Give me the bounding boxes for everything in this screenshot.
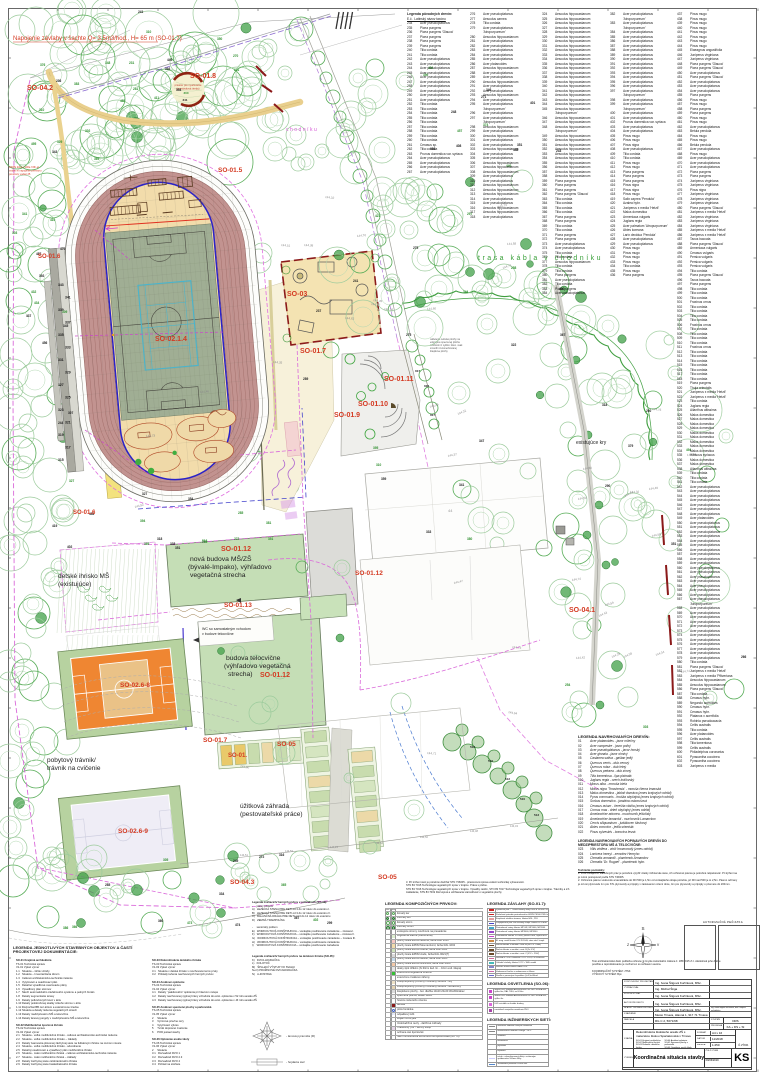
svg-text:(pestovateľské práce): (pestovateľské práce) (240, 811, 303, 818)
svg-text:512: 512 (505, 777, 510, 781)
svg-text:392: 392 (39, 274, 45, 278)
svg-text:144,60: 144,60 (427, 306, 437, 311)
svg-text:144,64: 144,64 (508, 710, 518, 716)
svg-text:381: 381 (266, 521, 272, 525)
svg-text:290: 290 (605, 484, 611, 488)
svg-text:350: 350 (217, 37, 223, 41)
svg-text:SO-01.6: SO-01.6 (73, 510, 96, 516)
svg-text:231: 231 (234, 68, 240, 72)
svg-text:SO-01.9: SO-01.9 (334, 412, 360, 419)
svg-text:144,74: 144,74 (624, 490, 634, 498)
svg-text:470: 470 (60, 247, 66, 251)
svg-text:513: 513 (534, 813, 539, 817)
svg-text:315: 315 (58, 458, 64, 462)
svg-text:338: 338 (170, 542, 176, 546)
svg-text:510: 510 (520, 797, 525, 801)
svg-text:249: 249 (233, 859, 239, 863)
svg-text:- hojdacia sieť: - hojdacia sieť (286, 1060, 306, 1064)
svg-text:WC so samostatným vchodom: WC so samostatným vchodom (202, 627, 251, 631)
svg-text:383: 383 (74, 82, 80, 86)
svg-text:144,32: 144,32 (325, 195, 335, 200)
svg-text:017: 017 (415, 369, 420, 373)
svg-text:SO-01.5: SO-01.5 (218, 167, 243, 174)
svg-text:379: 379 (628, 444, 634, 448)
svg-text:pobytový trávnik/: pobytový trávnik/ (47, 757, 96, 764)
svg-text:329: 329 (65, 371, 71, 375)
svg-text:nová budova MŠ/ZŠ: nová budova MŠ/ZŠ (190, 554, 252, 563)
svg-text:325: 325 (65, 396, 71, 400)
svg-text:354: 354 (188, 497, 194, 501)
svg-text:331: 331 (58, 358, 64, 362)
svg-text:343: 343 (52, 150, 58, 154)
svg-text:323: 323 (58, 408, 64, 412)
svg-text:281: 281 (133, 87, 139, 91)
svg-text:474: 474 (235, 923, 241, 927)
svg-text:341: 341 (22, 212, 28, 216)
svg-text:365: 365 (281, 883, 287, 887)
svg-text:144,46: 144,46 (200, 389, 210, 394)
svg-text:144,86: 144,86 (384, 307, 394, 312)
svg-text:347: 347 (479, 439, 485, 443)
svg-text:(bývalé-Impako), výhľadovo: (bývalé-Impako), výhľadovo (188, 564, 272, 571)
svg-text:318: 318 (157, 537, 163, 541)
svg-text:411: 411 (154, 96, 159, 100)
svg-text:260: 260 (646, 409, 652, 413)
svg-text:vodiet el napojenie priestoru: vodiet el napojenie priestoru (9, 169, 42, 173)
svg-text:518: 518 (470, 745, 475, 749)
svg-text:SO-01.: SO-01. (228, 753, 247, 759)
svg-text:S: S (641, 926, 644, 931)
svg-text:priestor pre vyučovanie: priestor pre vyučovanie (175, 83, 202, 87)
svg-text:236: 236 (56, 79, 62, 83)
svg-text:319: 319 (58, 433, 64, 437)
svg-text:úžitková záhrada: úžitková záhrada (240, 803, 290, 810)
svg-text:275: 275 (413, 246, 419, 250)
svg-text:360: 360 (158, 919, 164, 923)
svg-text:322: 322 (511, 343, 517, 347)
svg-text:SO-04.2: SO-04.2 (27, 85, 53, 92)
svg-text:310: 310 (146, 30, 152, 34)
svg-text:275: 275 (406, 333, 412, 337)
svg-text:516: 516 (202, 539, 208, 543)
svg-text:402: 402 (67, 545, 73, 549)
svg-text:351: 351 (671, 542, 677, 546)
svg-text:144,58: 144,58 (507, 242, 517, 246)
svg-text:366: 366 (72, 925, 78, 929)
svg-text:144,38: 144,38 (304, 243, 314, 247)
svg-text:144,24: 144,24 (330, 845, 338, 849)
svg-text:437: 437 (26, 314, 32, 318)
svg-text:SO-01.11: SO-01.11 (384, 376, 414, 383)
svg-text:144,75: 144,75 (652, 407, 662, 412)
svg-text:369: 369 (94, 157, 100, 161)
svg-text:380: 380 (467, 537, 473, 541)
svg-text:SO-01.6: SO-01.6 (38, 254, 61, 260)
svg-text:SO-04.3: SO-04.3 (230, 879, 255, 886)
svg-text:254: 254 (565, 683, 571, 687)
svg-text:341: 341 (459, 483, 465, 487)
svg-text:434: 434 (34, 301, 40, 305)
svg-text:144,43: 144,43 (598, 610, 608, 618)
svg-text:SO-02.6-8: SO-02.6-8 (120, 682, 150, 689)
svg-text:144,56: 144,56 (420, 835, 428, 839)
svg-text:310: 310 (376, 463, 382, 467)
svg-text:348: 348 (105, 61, 111, 65)
svg-text:144,53: 144,53 (285, 849, 293, 853)
svg-text:vegetačná strecha: vegetačná strecha (190, 572, 246, 579)
svg-text:144,52: 144,52 (134, 502, 144, 508)
svg-text:334: 334 (219, 892, 225, 896)
svg-text:335: 335 (58, 333, 64, 337)
svg-text:307: 307 (68, 411, 74, 415)
svg-text:329: 329 (57, 140, 63, 144)
svg-text:345: 345 (63, 324, 69, 328)
svg-text:237: 237 (316, 309, 322, 313)
svg-text:SO-01.12: SO-01.12 (221, 546, 251, 553)
svg-text:SO-01.13: SO-01.13 (224, 602, 252, 609)
svg-text:trávnik na cvičenie: trávnik na cvičenie (47, 765, 101, 772)
svg-text:272: 272 (234, 537, 240, 541)
svg-text:341: 341 (65, 296, 71, 300)
svg-text:44: 44 (448, 508, 453, 513)
svg-text:(existujúce): (existujúce) (58, 581, 91, 588)
svg-text:SO-05: SO-05 (277, 741, 296, 748)
svg-text:421: 421 (375, 214, 381, 218)
svg-text:272: 272 (259, 855, 265, 859)
svg-text:SO-01.7: SO-01.7 (300, 348, 326, 355)
svg-text:144,34: 144,34 (655, 650, 665, 657)
svg-text:SO-03: SO-03 (287, 291, 307, 298)
svg-text:456: 456 (42, 341, 48, 345)
svg-text:chodníku: chodníku (286, 127, 318, 133)
svg-text:327: 327 (58, 383, 64, 387)
svg-text:432: 432 (31, 290, 37, 294)
svg-text:419: 419 (52, 524, 58, 528)
svg-text:budova telocvične: budova telocvične (226, 655, 281, 662)
svg-text:266: 266 (741, 655, 747, 659)
svg-text:144,39: 144,39 (611, 651, 621, 659)
svg-text:144,59: 144,59 (623, 651, 633, 659)
svg-text:SO-02.1.4: SO-02.1.4 (155, 336, 187, 343)
svg-text:SO-01.7: SO-01.7 (203, 737, 228, 744)
svg-text:144,90: 144,90 (240, 764, 250, 770)
svg-text:144,51: 144,51 (240, 853, 248, 857)
svg-text:prestrety vodiet 25: prestrety vodiet 25 (9, 172, 31, 176)
svg-text:Z: Z (627, 943, 630, 947)
svg-text:144,48: 144,48 (470, 829, 478, 833)
svg-text:317: 317 (65, 446, 71, 450)
svg-text:449: 449 (167, 58, 173, 62)
svg-text:SO-01.12: SO-01.12 (355, 570, 383, 577)
svg-text:289: 289 (303, 377, 309, 381)
svg-text:144,59: 144,59 (604, 601, 614, 607)
svg-text:SO-02.6-9: SO-02.6-9 (118, 828, 148, 835)
svg-text:359: 359 (381, 477, 387, 481)
svg-text:SO-04.1: SO-04.1 (569, 607, 595, 614)
svg-text:144,51: 144,51 (281, 243, 291, 248)
svg-text:SO-01.10: SO-01.10 (358, 401, 388, 408)
svg-text:369: 369 (144, 542, 150, 546)
svg-text:241: 241 (138, 10, 144, 14)
svg-text:367: 367 (560, 333, 566, 337)
svg-text:309: 309 (62, 310, 68, 314)
svg-text:strecha): strecha) (228, 671, 253, 678)
svg-text:241: 241 (353, 279, 359, 283)
svg-text:344: 344 (463, 290, 469, 294)
svg-text:302: 302 (85, 129, 91, 133)
svg-text:(výhľadovo vegetačná: (výhľadovo vegetačná (224, 663, 291, 670)
svg-text:401: 401 (530, 101, 536, 105)
svg-text:144,62: 144,62 (345, 316, 355, 321)
svg-text:321: 321 (65, 421, 71, 425)
svg-text:244: 244 (58, 421, 64, 425)
svg-text:318: 318 (602, 403, 608, 407)
svg-text:343: 343 (58, 283, 64, 287)
svg-text:354: 354 (176, 88, 182, 92)
svg-text:516: 516 (488, 759, 493, 763)
svg-text:303: 303 (643, 725, 649, 729)
svg-text:144,43: 144,43 (510, 824, 518, 828)
svg-text:285: 285 (238, 511, 244, 515)
svg-text:485: 485 (120, 99, 126, 103)
svg-text:316: 316 (279, 853, 285, 857)
svg-text:393: 393 (165, 67, 171, 71)
svg-text:- lanová pyramída (R): - lanová pyramída (R) (286, 1034, 315, 1038)
svg-text:144,74: 144,74 (572, 577, 582, 582)
svg-text:333: 333 (426, 530, 432, 534)
svg-text:144,32: 144,32 (457, 408, 467, 416)
svg-text:018: 018 (424, 384, 429, 388)
svg-text:270: 270 (233, 54, 239, 58)
svg-text:410: 410 (50, 218, 56, 222)
svg-text:V: V (657, 943, 660, 947)
svg-text:štiepkove plochy: štiepkove plochy (430, 350, 448, 353)
svg-text:473: 473 (187, 921, 193, 925)
svg-text:351: 351 (175, 546, 181, 550)
svg-text:333: 333 (65, 346, 71, 350)
svg-text:376: 376 (40, 63, 46, 67)
svg-text:existujúce kry: existujúce kry (576, 440, 607, 446)
svg-text:305: 305 (163, 858, 169, 862)
svg-text:SO-01.8: SO-01.8 (190, 73, 216, 80)
svg-text:017: 017 (430, 413, 435, 417)
svg-text:327: 327 (69, 479, 75, 483)
svg-text:HDPE širka r.100a 7dlh-el: HDPE širka r.100a 7dlh-el (9, 165, 39, 169)
svg-text:144,49: 144,49 (649, 486, 659, 491)
svg-text:285: 285 (105, 883, 111, 887)
svg-text:144,70: 144,70 (357, 233, 367, 238)
svg-text:300: 300 (183, 91, 188, 95)
svg-text:Napojenie závlahy v šachte Q=: Napojenie závlahy v šachte Q= 3.5m3/hod.… (13, 36, 182, 42)
svg-text:144,73: 144,73 (146, 434, 156, 438)
svg-text:395: 395 (373, 446, 379, 450)
svg-text:495: 495 (31, 142, 37, 146)
svg-text:v budove telocvične: v budove telocvične (202, 632, 234, 636)
svg-text:394: 394 (140, 519, 146, 523)
svg-text:327: 327 (142, 492, 148, 496)
svg-text:144,37: 144,37 (447, 452, 457, 458)
svg-text:144,71: 144,71 (427, 751, 437, 756)
svg-text:SO-01.12: SO-01.12 (260, 672, 290, 679)
svg-text:303: 303 (12, 231, 18, 235)
svg-text:231: 231 (129, 61, 135, 65)
svg-text:351: 351 (268, 537, 274, 541)
svg-text:144,35: 144,35 (273, 360, 283, 365)
svg-text:144,50: 144,50 (578, 496, 588, 501)
svg-text:341: 341 (182, 98, 187, 102)
svg-text:144,42: 144,42 (576, 655, 586, 660)
svg-text:SO-05: SO-05 (378, 874, 397, 881)
svg-text:detské ihrisko MŠ: detské ihrisko MŠ (58, 571, 110, 580)
svg-text:310: 310 (39, 108, 45, 112)
svg-text:386: 386 (63, 926, 69, 930)
